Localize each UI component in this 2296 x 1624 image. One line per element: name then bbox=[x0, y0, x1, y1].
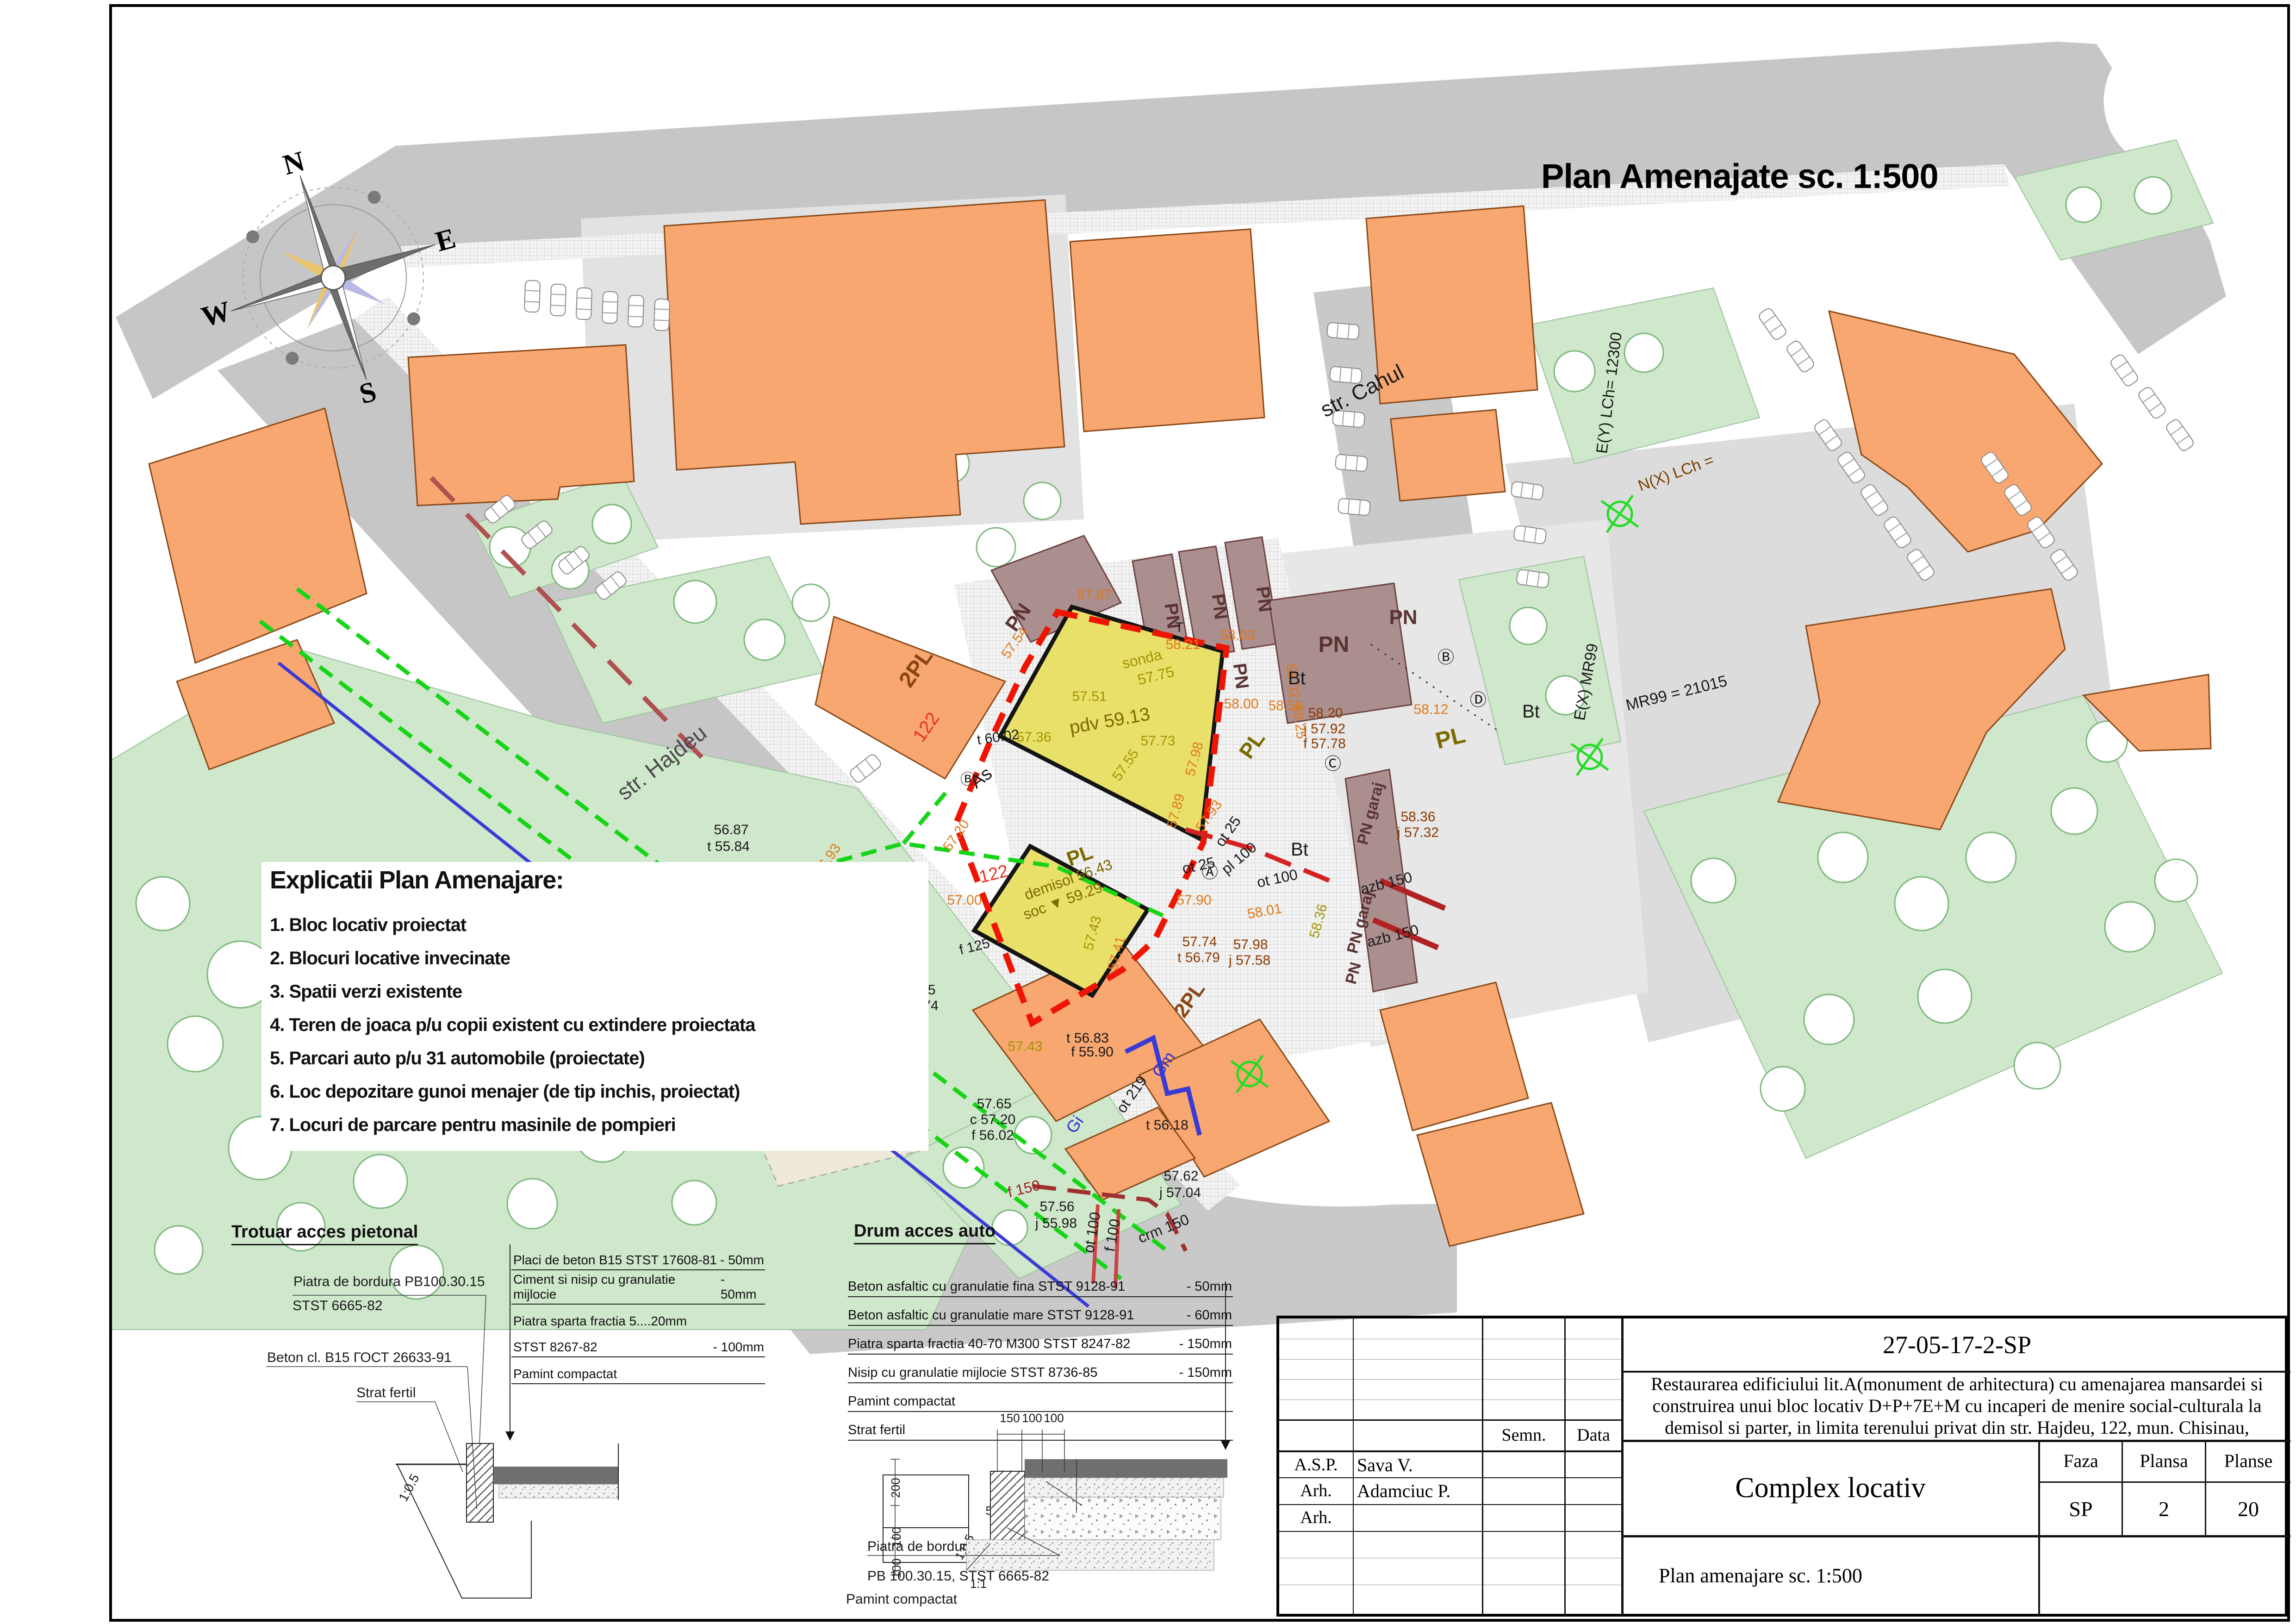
drum-section-title: Drum acces auto bbox=[854, 1221, 996, 1244]
layer-row: Piatra sparta fractia 5....20mm bbox=[511, 1305, 765, 1330]
tree-icon bbox=[2134, 177, 2172, 214]
layer-row: Piatra sparta fractia 40-70 M300 STST 82… bbox=[848, 1326, 1233, 1355]
tree-icon bbox=[1554, 351, 1595, 392]
trotuar-layer-table: Placi de beton B15 STST 17608-81- 50mmCi… bbox=[511, 1243, 765, 1384]
plan-label: Ⓑ bbox=[1437, 648, 1454, 667]
plan-label: Bt bbox=[1522, 701, 1540, 722]
project-description: Restaurarea edificiului lit.A(monument d… bbox=[1627, 1373, 2287, 1439]
car-icon bbox=[1327, 322, 1360, 340]
plan-label: T bbox=[1175, 620, 1183, 635]
layer-row: Beton asfaltic cu granulatie fina STST 9… bbox=[848, 1268, 1233, 1297]
tree-icon bbox=[1510, 607, 1547, 644]
plan-label: 58.00 bbox=[1224, 696, 1258, 712]
layer-text: Beton asfaltic cu granulatie fina STST 9… bbox=[848, 1279, 1125, 1294]
layer-text: Piatra sparta fractia 40-70 M300 STST 82… bbox=[848, 1337, 1130, 1352]
layer-text: STST 8267-82 bbox=[513, 1340, 597, 1355]
legend-item: 7. Locuri de parcare pentru masinile de … bbox=[270, 1108, 920, 1142]
plan-label: t 55.84 bbox=[707, 839, 750, 854]
plan-label: t 56.83 bbox=[1066, 1031, 1109, 1046]
legend-item: 2. Blocuri locative invecinate bbox=[270, 942, 920, 975]
legend-item: 4. Teren de joaca p/u copii existent cu … bbox=[270, 1008, 920, 1042]
plan-label: Ⓒ bbox=[1325, 754, 1341, 773]
tree-icon bbox=[1966, 832, 2016, 882]
signature-role: Arh. bbox=[1279, 1478, 1353, 1503]
layer-row: Placi de beton B15 STST 17608-81- 50mm bbox=[511, 1243, 765, 1270]
layer-row: Beton asfaltic cu granulatie mare STST 9… bbox=[848, 1297, 1233, 1326]
plan-label: PN bbox=[1389, 606, 1417, 629]
compass-n-label: N bbox=[280, 145, 308, 181]
tree-icon bbox=[1024, 482, 1061, 519]
car-icon bbox=[524, 280, 540, 312]
car-icon bbox=[654, 299, 670, 331]
plan-label: PN bbox=[1319, 632, 1350, 657]
car-icon bbox=[576, 287, 592, 319]
plan-label: Pamint compactat bbox=[846, 1592, 958, 1607]
tree-icon bbox=[1761, 1067, 1805, 1111]
project-code: 27-05-17-2-SP bbox=[1624, 1318, 2290, 1371]
planse-header: Planse bbox=[2206, 1440, 2290, 1481]
layer-row: Pamint compactat bbox=[848, 1383, 1233, 1412]
tree-icon bbox=[168, 1016, 223, 1072]
layer-text: Pamint compactat bbox=[513, 1367, 617, 1381]
signature-role: A.S.P. bbox=[1279, 1452, 1353, 1477]
plan-label: j 57.04 bbox=[1159, 1185, 1201, 1200]
layer-text: Ciment si nisip cu granulatie mijlocie bbox=[513, 1272, 721, 1302]
legend-items: 1. Bloc locativ proiectat2. Blocuri loca… bbox=[270, 908, 920, 1142]
car-icon bbox=[2165, 418, 2195, 452]
plan-label: STST 6665-82 bbox=[292, 1298, 383, 1313]
plan-label: Strat fertil bbox=[356, 1385, 416, 1400]
plan-label: 200 bbox=[889, 1478, 902, 1498]
plan-label: 58.20 bbox=[1308, 706, 1343, 721]
plan-label: j 55.98 bbox=[1035, 1216, 1077, 1231]
trotuar-section-title: Trotuar acces pietonal bbox=[231, 1222, 418, 1245]
plan-label: Beton cl. B15 ГОСТ 26633-91 bbox=[267, 1350, 452, 1365]
tree-icon bbox=[1804, 994, 1854, 1044]
title-block: Semn. Data A.S.P. Sava V. Arh. Adamciuc … bbox=[1276, 1316, 2288, 1617]
car-icon bbox=[1335, 454, 1368, 472]
car-icon bbox=[1785, 339, 1815, 374]
car-icon bbox=[1757, 307, 1787, 341]
signature-name: Sava V. bbox=[1357, 1452, 1482, 1477]
project-name: Complex locativ bbox=[1624, 1442, 2037, 1534]
signature-name bbox=[1357, 1505, 1482, 1530]
tree-icon bbox=[2014, 1043, 2060, 1089]
layer-thickness: - 100mm bbox=[713, 1340, 764, 1355]
tree-icon bbox=[2051, 788, 2097, 834]
plan-label: PN bbox=[1208, 593, 1231, 621]
plan-label: 57.62 bbox=[1164, 1168, 1198, 1184]
drawing-title: Plan amenajare sc. 1:500 bbox=[1659, 1537, 2034, 1614]
layer-text: Piatra sparta fractia 5....20mm bbox=[513, 1314, 687, 1329]
tree-icon bbox=[1691, 858, 1736, 903]
layer-row: Strat fertil bbox=[848, 1412, 1233, 1441]
tree-icon bbox=[2066, 187, 2101, 222]
plan-label: t 56.18 bbox=[1146, 1118, 1188, 1133]
tree-icon bbox=[2105, 902, 2155, 952]
legend-item: 6. Loc depozitare gunoi menajer (de tip … bbox=[270, 1075, 920, 1108]
car-icon bbox=[1338, 498, 1371, 516]
plan-label: PN bbox=[1252, 585, 1276, 613]
faza-header: Faza bbox=[2040, 1440, 2122, 1481]
tree-icon bbox=[977, 528, 1015, 567]
plan-label: PN bbox=[1229, 662, 1252, 690]
tree-icon bbox=[1624, 333, 1663, 372]
tree-icon bbox=[744, 619, 785, 660]
plan-label: 57.74 bbox=[1182, 934, 1217, 949]
plan-label: f 56.02 bbox=[971, 1128, 1014, 1143]
tree-icon bbox=[155, 1226, 203, 1274]
layer-thickness: - 50mm bbox=[720, 1253, 764, 1268]
tree-icon bbox=[792, 584, 829, 621]
tree-icon bbox=[1818, 832, 1868, 882]
page-title: Plan Amenajate sc. 1:500 bbox=[1541, 156, 1938, 196]
plan-label: f 57.78 bbox=[1303, 736, 1346, 751]
plan-label: c 57.20 bbox=[970, 1112, 1015, 1127]
layer-row: Pamint compactat bbox=[511, 1357, 765, 1384]
plan-label: 57.43 bbox=[1008, 1039, 1042, 1054]
layer-thickness: - 150mm bbox=[1179, 1365, 1232, 1380]
legend-item: 5. Parcari auto p/u 31 automobile (proie… bbox=[270, 1042, 920, 1075]
plan-label: 57.87 bbox=[1076, 587, 1111, 602]
legend-item: 3. Spatii verzi existente bbox=[270, 975, 920, 1008]
plansa-header: Plansa bbox=[2123, 1440, 2205, 1481]
tree-icon bbox=[674, 581, 716, 623]
legend-box: Explicatii Plan Amenajare: 1. Bloc locat… bbox=[261, 862, 928, 1151]
car-icon bbox=[848, 753, 882, 784]
plan-label: 57.90 bbox=[1176, 893, 1211, 908]
car-icon bbox=[550, 284, 566, 316]
layer-text: Placi de beton B15 STST 17608-81 bbox=[513, 1253, 717, 1268]
plan-label: Piatra de bordura PB100.30.15 bbox=[293, 1274, 485, 1289]
drawing-sheet: str. Hajdeustr. CahulE(Y) LCh= 12300N(X)… bbox=[0, 0, 2296, 1624]
plan-label: Bt bbox=[1288, 668, 1306, 688]
layer-thickness: - 150mm bbox=[1179, 1337, 1232, 1352]
layer-text: Nisip cu granulatie mijlocie STST 8736-8… bbox=[848, 1365, 1097, 1380]
plan-label: 57.73 bbox=[1140, 733, 1175, 749]
car-icon bbox=[628, 295, 644, 327]
tree-icon bbox=[507, 1179, 557, 1229]
plan-label: j 57.92 bbox=[1303, 721, 1345, 737]
plan-label: 57.65 bbox=[977, 1096, 1011, 1112]
plan-label: t 56.79 bbox=[1177, 950, 1220, 965]
tree-icon bbox=[2155, 859, 2197, 902]
legend-title: Explicatii Plan Amenajare: bbox=[270, 866, 920, 894]
data-header: Data bbox=[1566, 1419, 1621, 1450]
semn-header: Semn. bbox=[1483, 1419, 1564, 1450]
plansa-value: 2 bbox=[2123, 1483, 2205, 1535]
plan-label: 57.36 bbox=[1016, 730, 1051, 745]
signature-role: Arh. bbox=[1279, 1505, 1353, 1530]
plan-label: 58.12 bbox=[1413, 702, 1448, 717]
tree-icon bbox=[1014, 1117, 1052, 1154]
car-icon bbox=[2137, 386, 2167, 420]
plan-label: 1:0.5 bbox=[396, 1472, 422, 1504]
layer-thickness: - 50mm bbox=[1187, 1279, 1232, 1294]
layer-thickness: - 50mm bbox=[721, 1272, 764, 1302]
faza-value: SP bbox=[2040, 1483, 2122, 1535]
car-icon bbox=[2109, 353, 2139, 387]
tree-icon bbox=[136, 877, 190, 931]
plan-label: Ⓓ bbox=[1470, 690, 1487, 709]
layer-row: STST 8267-82- 100mm bbox=[511, 1330, 765, 1357]
plan-label: f 55.90 bbox=[1071, 1044, 1114, 1060]
plan-label: PB 100.30.15, STST 6665-82 bbox=[867, 1568, 1049, 1584]
plan-label: 58.03 bbox=[1220, 628, 1255, 643]
legend-item: 1. Bloc locativ proiectat bbox=[270, 908, 920, 942]
tree-icon bbox=[592, 505, 631, 543]
layer-row: Nisip cu granulatie mijlocie STST 8736-8… bbox=[848, 1355, 1233, 1383]
plan-label: 58.36 bbox=[1400, 809, 1435, 824]
plan-label: 57.98 bbox=[1233, 937, 1268, 952]
tree-icon bbox=[992, 1210, 1027, 1245]
tree-icon bbox=[390, 1245, 443, 1299]
layer-row: Ciment si nisip cu granulatie mijlocie- … bbox=[511, 1270, 765, 1305]
drum-layer-table: Beton asfaltic cu granulatie fina STST 9… bbox=[848, 1268, 1233, 1441]
layer-text: Strat fertil bbox=[848, 1423, 905, 1438]
planse-value: 20 bbox=[2206, 1483, 2290, 1535]
plan-label: 57.51 bbox=[1072, 689, 1107, 704]
layer-thickness: - 60mm bbox=[1187, 1308, 1232, 1323]
plan-label: 57.56 bbox=[1039, 1199, 1074, 1214]
tree-icon bbox=[1895, 877, 1948, 931]
layer-text: Beton asfaltic cu granulatie mare STST 9… bbox=[848, 1308, 1134, 1323]
signature-name: Adamciuc P. bbox=[1357, 1478, 1482, 1503]
plan-label: 57.00 bbox=[947, 893, 982, 908]
layer-text: Pamint compactat bbox=[848, 1394, 955, 1409]
plan-label: 56.87 bbox=[714, 822, 748, 837]
tree-icon bbox=[672, 1181, 716, 1225]
tree-icon bbox=[1918, 969, 1972, 1023]
plan-label: Bt bbox=[1291, 839, 1308, 860]
plan-label: 58.21 bbox=[1165, 637, 1200, 652]
tree-icon bbox=[354, 1155, 407, 1208]
plan-label: j 57.58 bbox=[1228, 953, 1270, 968]
car-icon bbox=[602, 291, 618, 323]
plan-label: j 57.32 bbox=[1397, 825, 1439, 840]
